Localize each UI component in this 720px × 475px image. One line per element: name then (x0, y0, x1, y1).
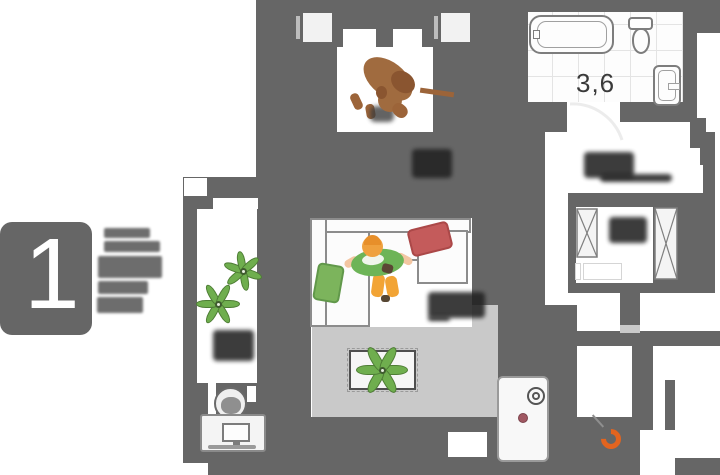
wall-segment (632, 346, 653, 430)
room-label-blur (609, 217, 647, 243)
wardrobe-crossbox (654, 207, 678, 280)
wall-segment (665, 380, 675, 430)
room-label-blur (428, 316, 450, 321)
unit-badge[interactable]: 1 (0, 222, 92, 335)
room-label-blur (412, 149, 452, 178)
boiler-knob (518, 413, 528, 423)
wall-segment (577, 331, 720, 346)
bathroom-area-label: 3,6 (576, 68, 615, 99)
keyboard (208, 445, 256, 449)
dog-ear (376, 86, 387, 99)
wall-opening (183, 463, 208, 475)
wall-opening (184, 178, 207, 196)
bathtub-faucet (533, 30, 540, 39)
wardrobe-crossbox (576, 208, 598, 258)
room-label-blur (600, 174, 672, 182)
room-label-blur (428, 292, 485, 318)
wall-segment (703, 160, 715, 200)
door-opening (448, 432, 487, 457)
door-arc (560, 100, 630, 145)
person-hair (364, 235, 381, 245)
sink-faucet (668, 83, 680, 90)
wall-opening (393, 29, 422, 47)
monitor (222, 423, 250, 442)
vent-shaft-bar (296, 16, 300, 39)
badge-caption-blur (104, 228, 150, 238)
vent-shaft (303, 13, 332, 42)
door-leaf (620, 325, 640, 333)
person-shoe (381, 295, 390, 302)
boiler-dial-inner (532, 392, 540, 400)
wall-segment (510, 100, 567, 132)
wall-segment (528, 0, 683, 12)
room-label-blur (213, 330, 254, 361)
vent-shaft-bar (434, 16, 438, 39)
vent-shaft (441, 13, 470, 42)
wardrobe-shelf (575, 263, 581, 280)
floorplan-card[interactable]: 3,6 (0, 0, 720, 475)
toilet-bowl (632, 28, 650, 54)
badge-caption-blur (98, 256, 162, 278)
wardrobe-shelf (583, 263, 622, 280)
wall-segment (675, 458, 720, 475)
unit-number: 1 (24, 218, 80, 331)
badge-caption-blur (104, 241, 160, 252)
bathtub-inner (537, 21, 607, 48)
wall-opening (343, 29, 376, 47)
wall-opening (247, 386, 256, 402)
wall-segment (683, 12, 697, 112)
badge-caption-blur (98, 281, 148, 294)
office-chair-seat (221, 397, 241, 414)
dog-leg (349, 92, 364, 111)
wall-segment (256, 47, 337, 132)
badge-caption-blur (97, 297, 143, 313)
wall-segment (256, 132, 545, 177)
wall-opening (197, 123, 232, 140)
wall-opening (213, 198, 258, 209)
